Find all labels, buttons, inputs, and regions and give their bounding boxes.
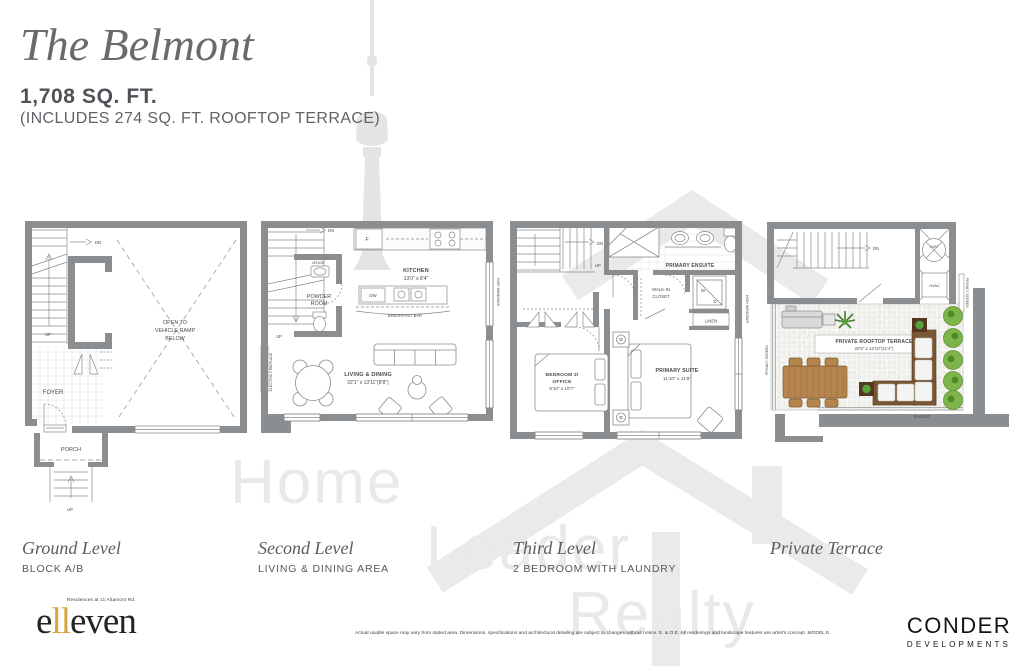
hwt-label: HWT: [930, 245, 939, 249]
linen-label: LINEN: [705, 319, 718, 324]
ledge-label: LEDGE: [312, 261, 325, 265]
bedroom2-label-1: BEDROOM 2/: [546, 372, 579, 378]
powder-label-1: POWDER: [307, 294, 331, 300]
third-high-windows-label: HIGH WINDOWS: [745, 295, 749, 324]
second-dn-label: DN: [328, 228, 334, 233]
fridge-label: F: [365, 237, 368, 243]
ground-dn-label: DN: [95, 240, 101, 245]
hwt-hvac-closet: [920, 229, 949, 300]
elleven-e: e: [36, 601, 51, 642]
privacy-screen-right-label: PRIVACY SCREEN: [965, 278, 969, 308]
plan-ground-level: OPEN TO VEHICLE RAMP BELOW FOYER PORCH D…: [20, 214, 252, 524]
page-title: The Belmont: [20, 22, 254, 68]
caption-ground-title: Ground Level: [22, 538, 121, 559]
conder-developments-logo: CONDER DEVELOPMENTS: [903, 615, 1015, 649]
dining-table: [293, 360, 333, 406]
ground-up-label: UP: [45, 332, 51, 337]
unit-area-note: (INCLUDES 274 SQ. FT. ROOFTOP TERRACE): [20, 110, 380, 128]
primary-suite-label: PRIMARY SUITE: [656, 368, 699, 374]
third-up-label: UP: [595, 263, 601, 268]
terrace-stairs: [777, 232, 870, 268]
third-stairs: [517, 228, 595, 272]
ground-up-entry-label: UP: [67, 507, 73, 512]
porch-label: PORCH: [61, 447, 81, 453]
sofa: [374, 344, 456, 365]
elleven-wordmark: elleven: [36, 603, 136, 640]
plan-private-terrace: PRIVATE ROOFTOP TERRACE 22'5" x 13'10"(1…: [757, 210, 1009, 466]
plan-second-level: KITCHEN 13'0" x 8'4" F DW BREAKFAST BAR …: [256, 214, 500, 458]
developer-sub: DEVELOPMENTS: [903, 640, 1015, 649]
second-high-windows-label: HIGH WINDOWS: [496, 278, 500, 307]
privacy-screen-left-label: PRIVACY SCREEN: [765, 345, 769, 375]
foyer-tiles: [32, 346, 104, 424]
fireplace-label: ELECTRIC FIREPLACE: [269, 352, 273, 391]
kitchen-label: KITCHEN: [403, 268, 429, 274]
caption-second-sub: LIVING & DINING AREA: [258, 563, 389, 575]
terrace-door: [859, 284, 881, 302]
elleven-ll-gold: ll: [51, 601, 70, 642]
kitchen-counters: [354, 228, 486, 250]
caption-private-terrace: Private Terrace: [770, 538, 883, 559]
unit-area: 1,708 SQ. FT.: [20, 85, 157, 109]
living-dining-dim-label: 22'1" x 13'11"(8'8"): [347, 380, 389, 386]
caption-second-title: Second Level: [258, 538, 389, 559]
bedroom2-label-2: OFFICE: [552, 379, 572, 385]
caption-ground-level: Ground Level BLOCK A/B: [22, 538, 121, 575]
dw-label: DW: [369, 293, 377, 298]
caption-terrace-title: Private Terrace: [770, 538, 883, 559]
caption-ground-sub: BLOCK A/B: [22, 563, 121, 575]
nightstands: [613, 332, 629, 425]
terrace-dim-label: 22'5" x 13'10"(11'4"): [855, 346, 894, 351]
ground-open2-label: VEHICLE RAMP: [155, 328, 196, 334]
caption-third-sub: 2 BEDROOM WITH LAUNDRY: [513, 563, 676, 575]
powder-label-2: ROOM: [311, 301, 328, 307]
shower: [609, 227, 659, 257]
caption-second-level: Second Level LIVING & DINING AREA: [258, 538, 389, 575]
primary-suite-dim-label: 11'10" x 11'8": [663, 376, 692, 382]
primary-armchair: [697, 406, 724, 433]
terrace-dn-label: DN: [873, 246, 879, 251]
terrace-title-label: PRIVATE ROOFTOP TERRACE: [835, 339, 912, 345]
legal-disclaimer: Actual usable space may vary from stated…: [355, 631, 831, 636]
foyer-label: FOYER: [43, 390, 64, 396]
breakfast-bar-label: BREAKFAST BAR: [388, 313, 422, 318]
ground-stairs: [32, 228, 91, 344]
garage-window: [135, 426, 220, 433]
hvac-label: HVAC: [929, 283, 940, 288]
caption-third-title: Third Level: [513, 538, 676, 559]
foyer-closet-doors: [74, 352, 112, 374]
washer-dryer: [693, 276, 726, 309]
kitchen-island: [356, 286, 450, 315]
third-dn-label: DN: [597, 241, 603, 246]
watermark-word-3: Realty: [568, 584, 756, 646]
terrace-shrubs: [944, 307, 963, 410]
terrace-dining-set: [783, 358, 847, 407]
plan-third-level: PRIMARY ENSUITE WALK-IN CLOSET W D LINEN…: [505, 214, 752, 462]
ground-open3-label: BELOW: [165, 336, 185, 342]
ground-open1-label: OPEN TO: [163, 320, 187, 326]
coffee-table: [408, 376, 426, 400]
elleven-logo: Residences at 11 Altamont Rd. elleven: [36, 597, 136, 640]
elleven-even: even: [70, 601, 136, 642]
developer-name: CONDER: [903, 615, 1015, 637]
bedroom2-dim-label: 9'10" x 10'7": [549, 386, 575, 391]
walkin-label-1: WALK-IN: [652, 287, 670, 292]
railing-label: RAILING: [914, 414, 931, 419]
caption-third-level: Third Level 2 BEDROOM WITH LAUNDRY: [513, 538, 676, 575]
living-dining-label: LIVING & DINING: [344, 372, 392, 378]
ensuite-fixtures: [665, 228, 737, 252]
kitchen-dim-label: 13'0" x 8'4": [404, 276, 429, 282]
ensuite-label: PRIMARY ENSUITE: [666, 263, 715, 269]
walkin-label-2: CLOSET: [652, 294, 670, 299]
watermark-word-1: Home: [230, 452, 403, 514]
second-up-label: UP: [276, 334, 282, 339]
